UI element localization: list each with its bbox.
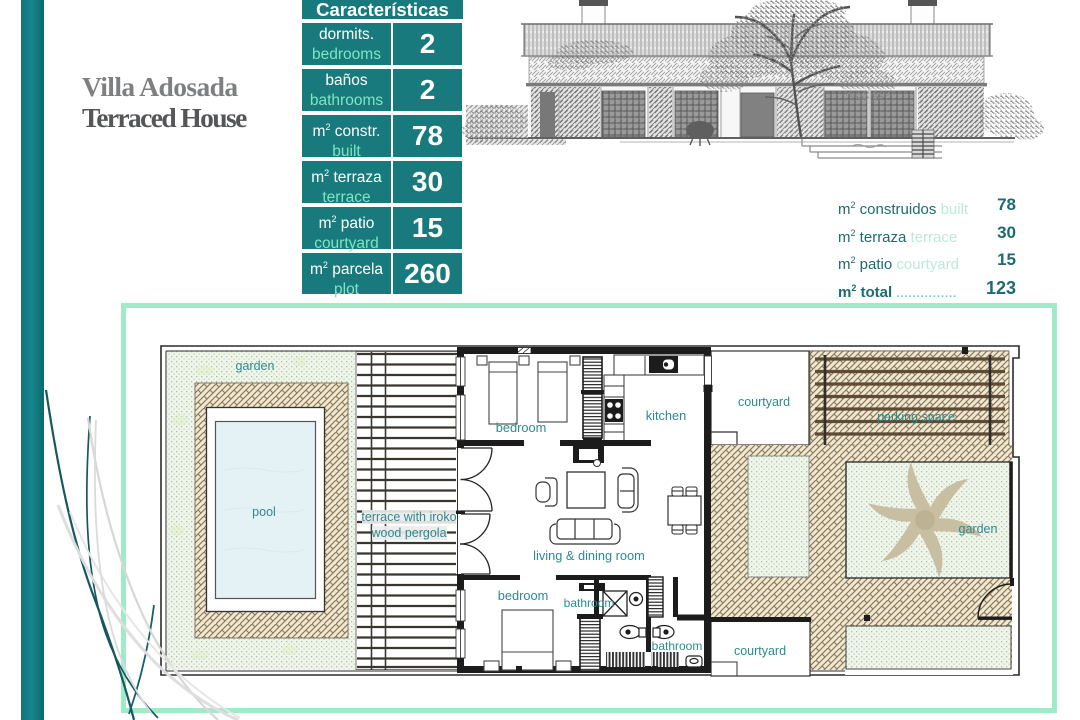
svg-text:parking space: parking space — [877, 410, 955, 424]
svg-text:garden: garden — [236, 359, 275, 373]
svg-text:terrace with iroko: terrace with iroko — [361, 510, 456, 524]
svg-text:courtyard: courtyard — [738, 395, 790, 409]
svg-text:kitchen: kitchen — [646, 408, 687, 423]
svg-text:bedroom: bedroom — [496, 420, 547, 435]
svg-text:bathroom: bathroom — [564, 596, 615, 610]
svg-text:wood pergola: wood pergola — [370, 526, 446, 540]
svg-text:bedroom: bedroom — [498, 588, 549, 603]
svg-text:living & dining room: living & dining room — [533, 548, 645, 563]
svg-text:garden: garden — [959, 522, 998, 536]
svg-text:bathroom: bathroom — [652, 639, 703, 653]
svg-text:courtyard: courtyard — [734, 644, 786, 658]
